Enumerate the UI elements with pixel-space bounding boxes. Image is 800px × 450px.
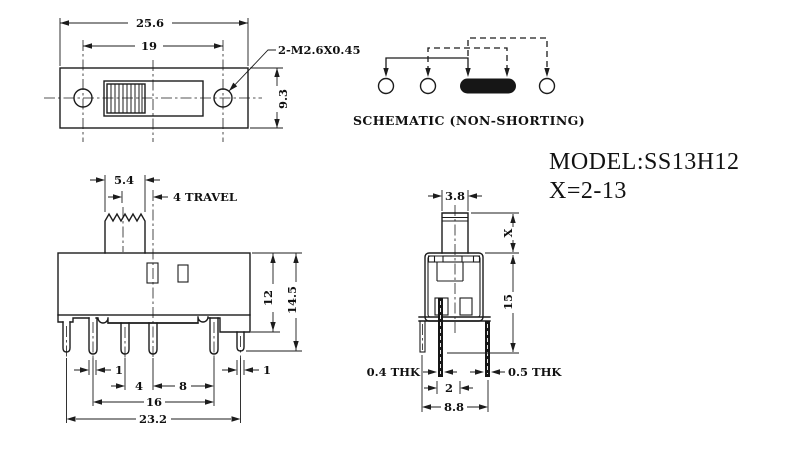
x-range: X=2-13	[549, 178, 627, 204]
schematic-terminal-2	[421, 79, 436, 94]
schematic-view: SCHEMATIC (NON-SHORTING)	[353, 38, 585, 128]
dim-pin-pitch: 4	[135, 379, 143, 393]
drawing-sheet: 25.6 19 9.3 2-M2.6X0.45 SCHEMATIC (NON-S…	[0, 0, 800, 450]
schematic-common-contact	[460, 79, 516, 94]
dim-pin-span: 16	[146, 395, 162, 409]
dim-top-hole-spacing: 19	[141, 39, 157, 53]
slider-knob-top	[107, 84, 145, 113]
top-view: 25.6 19 9.3 2-M2.6X0.45	[44, 16, 360, 142]
dim-travel: 4 TRAVEL	[173, 190, 237, 204]
thread-note: 2-M2.6X0.45	[278, 43, 360, 57]
front-view: 5.4 4 TRAVEL 1 1 4 8 16 23.2	[58, 173, 302, 426]
title-block: MODEL:SS13H12 X=2-13	[549, 149, 740, 204]
dim-thickness-left: 0.4 THK	[367, 365, 421, 379]
schematic-caption: SCHEMATIC (NON-SHORTING)	[353, 113, 585, 128]
dim-stem-width: 3.8	[445, 189, 465, 203]
dim-body-height: 12	[261, 290, 275, 306]
dim-knob-width: 5.4	[114, 173, 134, 187]
dim-overall-height: 14.5	[285, 286, 299, 314]
dim-side-pin-span: 8.8	[444, 400, 464, 414]
slider-knob-front	[105, 214, 145, 253]
schematic-terminal-4	[540, 79, 555, 94]
dim-base-width: 23.2	[139, 412, 167, 426]
dim-stem-height: X	[501, 228, 515, 237]
dim-top-overall-width: 25.6	[136, 16, 164, 30]
model-number: MODEL:SS13H12	[549, 149, 740, 175]
dim-pin-offset: 2	[445, 381, 453, 395]
dim-thickness-right: 0.5 THK	[508, 365, 562, 379]
dim-side-body-height: 15	[501, 294, 515, 310]
dim-pin-width-left: 1	[115, 363, 123, 377]
dim-top-body-depth: 9.3	[276, 89, 290, 109]
schematic-terminal-1	[379, 79, 394, 94]
dim-pin-pitch-right: 8	[179, 379, 187, 393]
dim-leg-width-right: 1	[263, 363, 271, 377]
side-view: 3.8 X 15 0.4 THK 0.5 THK 2 8.8	[367, 189, 563, 414]
switch-drawing: 25.6 19 9.3 2-M2.6X0.45 SCHEMATIC (NON-S…	[0, 0, 800, 450]
